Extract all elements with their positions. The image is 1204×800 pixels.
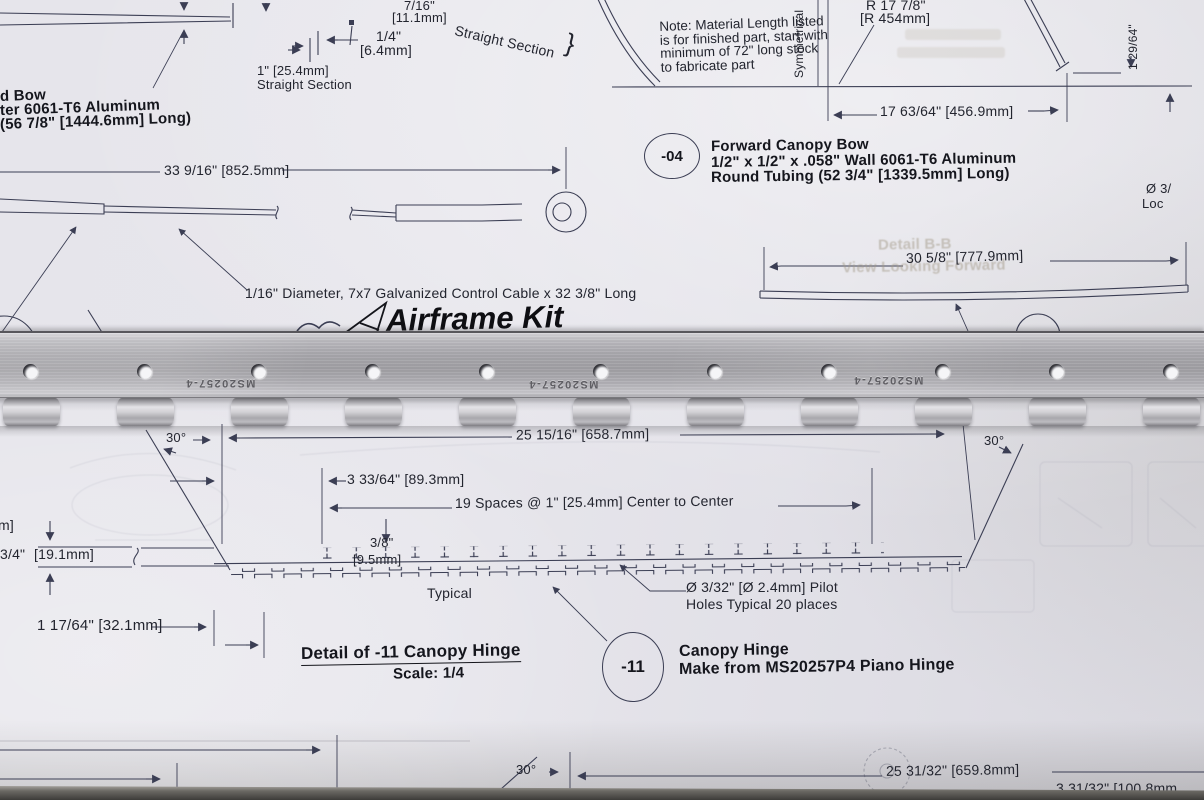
hinge-knuckle <box>1143 398 1200 426</box>
hinge-hole <box>479 364 494 379</box>
dim-3-33-64-label: 3 33/64" [89.3mm] <box>347 471 464 487</box>
hinge-hole <box>593 364 608 379</box>
ghost-bars-top-right <box>897 29 1005 58</box>
hinge-leaf: MS20257-4 MS20257-4 MS20257-4 <box>0 331 1204 398</box>
dim-3-4-mm-label: [19.1mm] <box>34 546 94 562</box>
hinge-hole <box>707 364 722 379</box>
detail-scale: Scale: 1/4 <box>393 664 465 682</box>
hinge-stamp-text: MS20257-4 <box>853 374 923 386</box>
hinge-knuckle <box>573 398 630 426</box>
dim-3-4-label: 3/4" <box>0 546 25 562</box>
hinge-stamp-text: MS20257-4 <box>185 377 255 389</box>
dim-33-9-16-label: 33 9/16" [852.5mm] <box>164 162 289 178</box>
hinge-knuckle <box>117 398 174 426</box>
hinge-knuckle <box>231 398 288 426</box>
hinge-knuckle <box>687 398 744 426</box>
straight-section2-label: Straight Section <box>257 77 352 92</box>
hinge-hole <box>137 364 152 379</box>
hinge-stamp-text: MS20257-4 <box>528 378 598 390</box>
pilot-holes-line2: Holes Typical 20 places <box>686 596 837 612</box>
photo-of-engineering-drawing: d Bow ter 6061-T6 Aluminum (56 7/8" [144… <box>0 0 1204 800</box>
hinge-knuckle <box>801 398 858 426</box>
cut-mm-label: m] <box>0 517 14 533</box>
dim-1-29-64-label: 1 29/64" <box>1126 24 1140 70</box>
typical-label: Typical <box>427 585 472 601</box>
hinge-hole <box>935 364 950 379</box>
symmetrical-label: Symmetrical <box>792 10 806 78</box>
pilot-holes-line1: Ø 3/32" [Ø 2.4mm] Pilot <box>686 579 838 595</box>
dim-1-17-64-label: 1 17/64" [32.1mm] <box>37 617 162 634</box>
hinge-hole <box>1163 364 1178 379</box>
dim-3-8-mm-label: [9.5mm] <box>353 552 401 567</box>
dim-17-63-64-label: 17 63/64" [456.9mm] <box>880 103 1013 119</box>
dim-25-31-32-label: 25 31/32" [659.8mm] <box>886 761 1020 779</box>
hinge-knuckle <box>345 398 402 426</box>
hinge-knuckle <box>1029 398 1086 426</box>
hinge-knuckle <box>3 398 60 426</box>
hinge-hole <box>23 364 38 379</box>
hinge-detail-linework <box>38 424 1023 658</box>
hinge-cast-shadow <box>0 426 1204 437</box>
radius-mm-label: [R 454mm] <box>860 10 930 26</box>
balloon-11-text: -11 <box>621 657 645 677</box>
dim-3-8-label: 3/8" <box>370 535 394 550</box>
hinge-hole <box>821 364 836 379</box>
hinge-hole <box>1049 364 1064 379</box>
dia-3-cut-label: Ø 3/ <box>1146 181 1171 196</box>
part11-name: Canopy Hinge <box>679 641 789 661</box>
balloon-04: -04 <box>644 133 700 179</box>
dim-7-16-mm-label: [11.1mm] <box>392 10 447 25</box>
balloon-04-text: -04 <box>661 148 683 165</box>
dim-1-4-mm-label: [6.4mm] <box>360 42 412 58</box>
loc-cut-label: Loc <box>1142 196 1164 211</box>
dim-1in-label: 1" [25.4mm] <box>257 63 329 78</box>
piano-hinge-photo: MS20257-4 MS20257-4 MS20257-4 <box>0 331 1204 427</box>
hinge-hole <box>365 364 380 379</box>
cable-spec-label: 1/16" Diameter, 7x7 Galvanized Control C… <box>245 285 636 301</box>
ghost-bleedthrough <box>70 442 1204 612</box>
hinge-knuckle <box>915 398 972 426</box>
angle-30-bottom-label: 30° <box>516 762 536 777</box>
dim-30-5-8-label: 30 5/8" [777.9mm] <box>906 247 1024 266</box>
hinge-knuckle <box>459 398 516 426</box>
balloon-11: -11 <box>602 632 664 702</box>
hinge-knuckle-row <box>0 398 1204 427</box>
detail-title: Detail of -11 Canopy Hinge <box>301 640 521 666</box>
dim-19-spaces-label: 19 Spaces @ 1" [25.4mm] Center to Center <box>455 493 734 511</box>
